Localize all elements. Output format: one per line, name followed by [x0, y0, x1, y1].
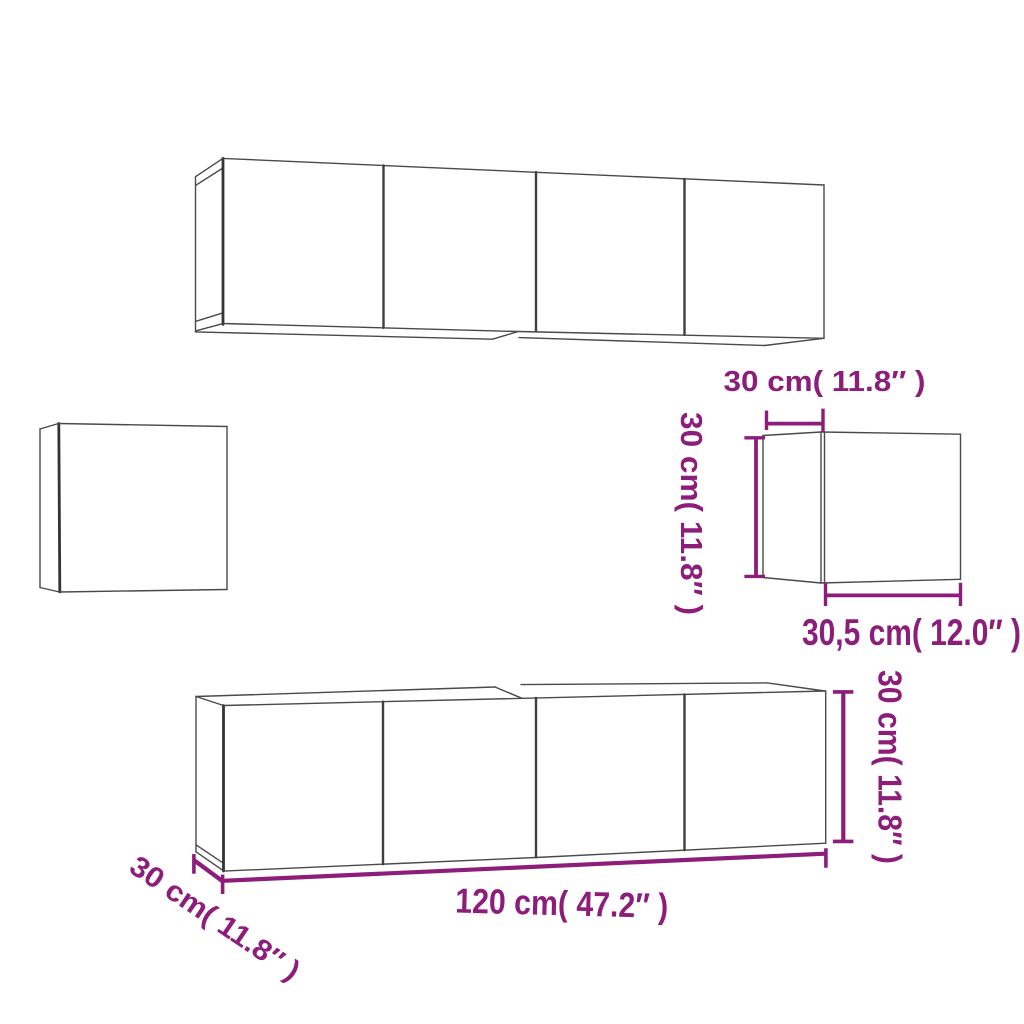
- svg-text:30,5 cm( 12.0″ ): 30,5 cm( 12.0″ ): [802, 611, 1021, 653]
- svg-text:30 cm( 11.8″ ): 30 cm( 11.8″ ): [724, 366, 926, 398]
- svg-text:30 cm( 11.8″ ): 30 cm( 11.8″ ): [872, 670, 909, 864]
- svg-text:120 cm( 47.2″ ): 120 cm( 47.2″ ): [455, 882, 669, 927]
- svg-text:30 cm( 11.8″ ): 30 cm( 11.8″ ): [674, 412, 709, 615]
